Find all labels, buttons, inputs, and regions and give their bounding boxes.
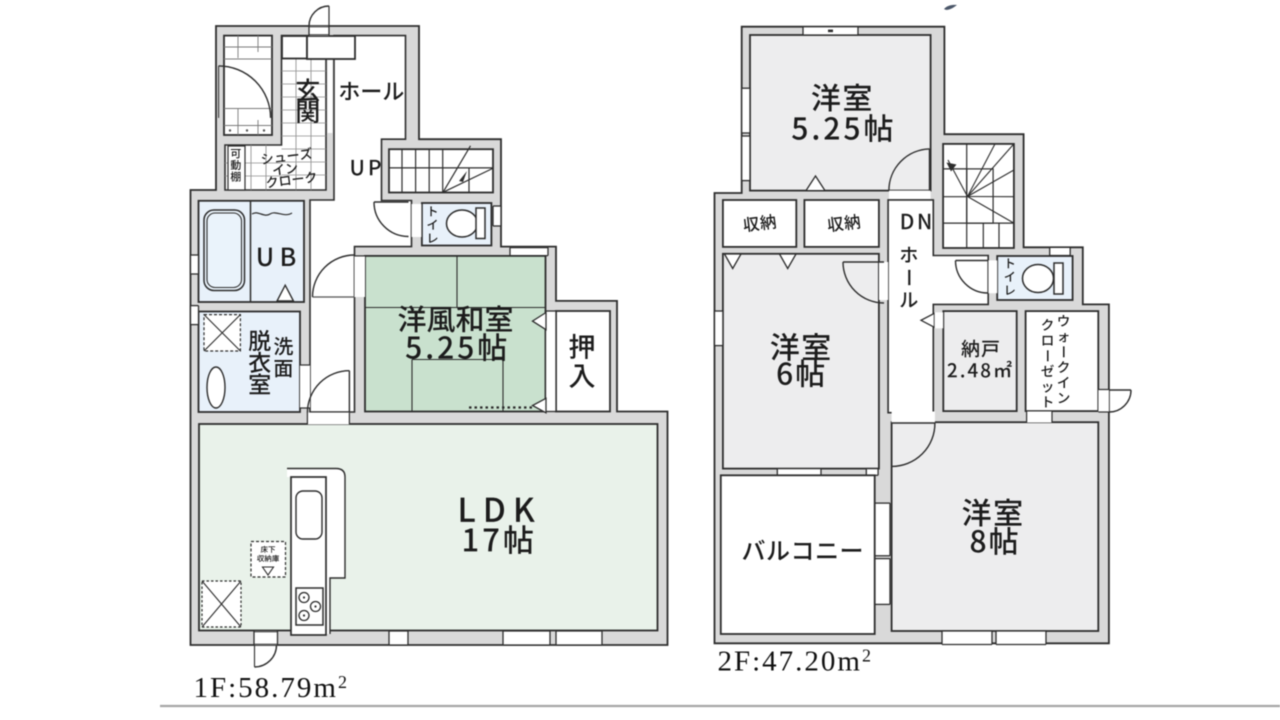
svg-text:1F:58.79m2: 1F:58.79m2 <box>194 672 350 704</box>
svg-text:2F:47.20m2: 2F:47.20m2 <box>718 646 874 678</box>
